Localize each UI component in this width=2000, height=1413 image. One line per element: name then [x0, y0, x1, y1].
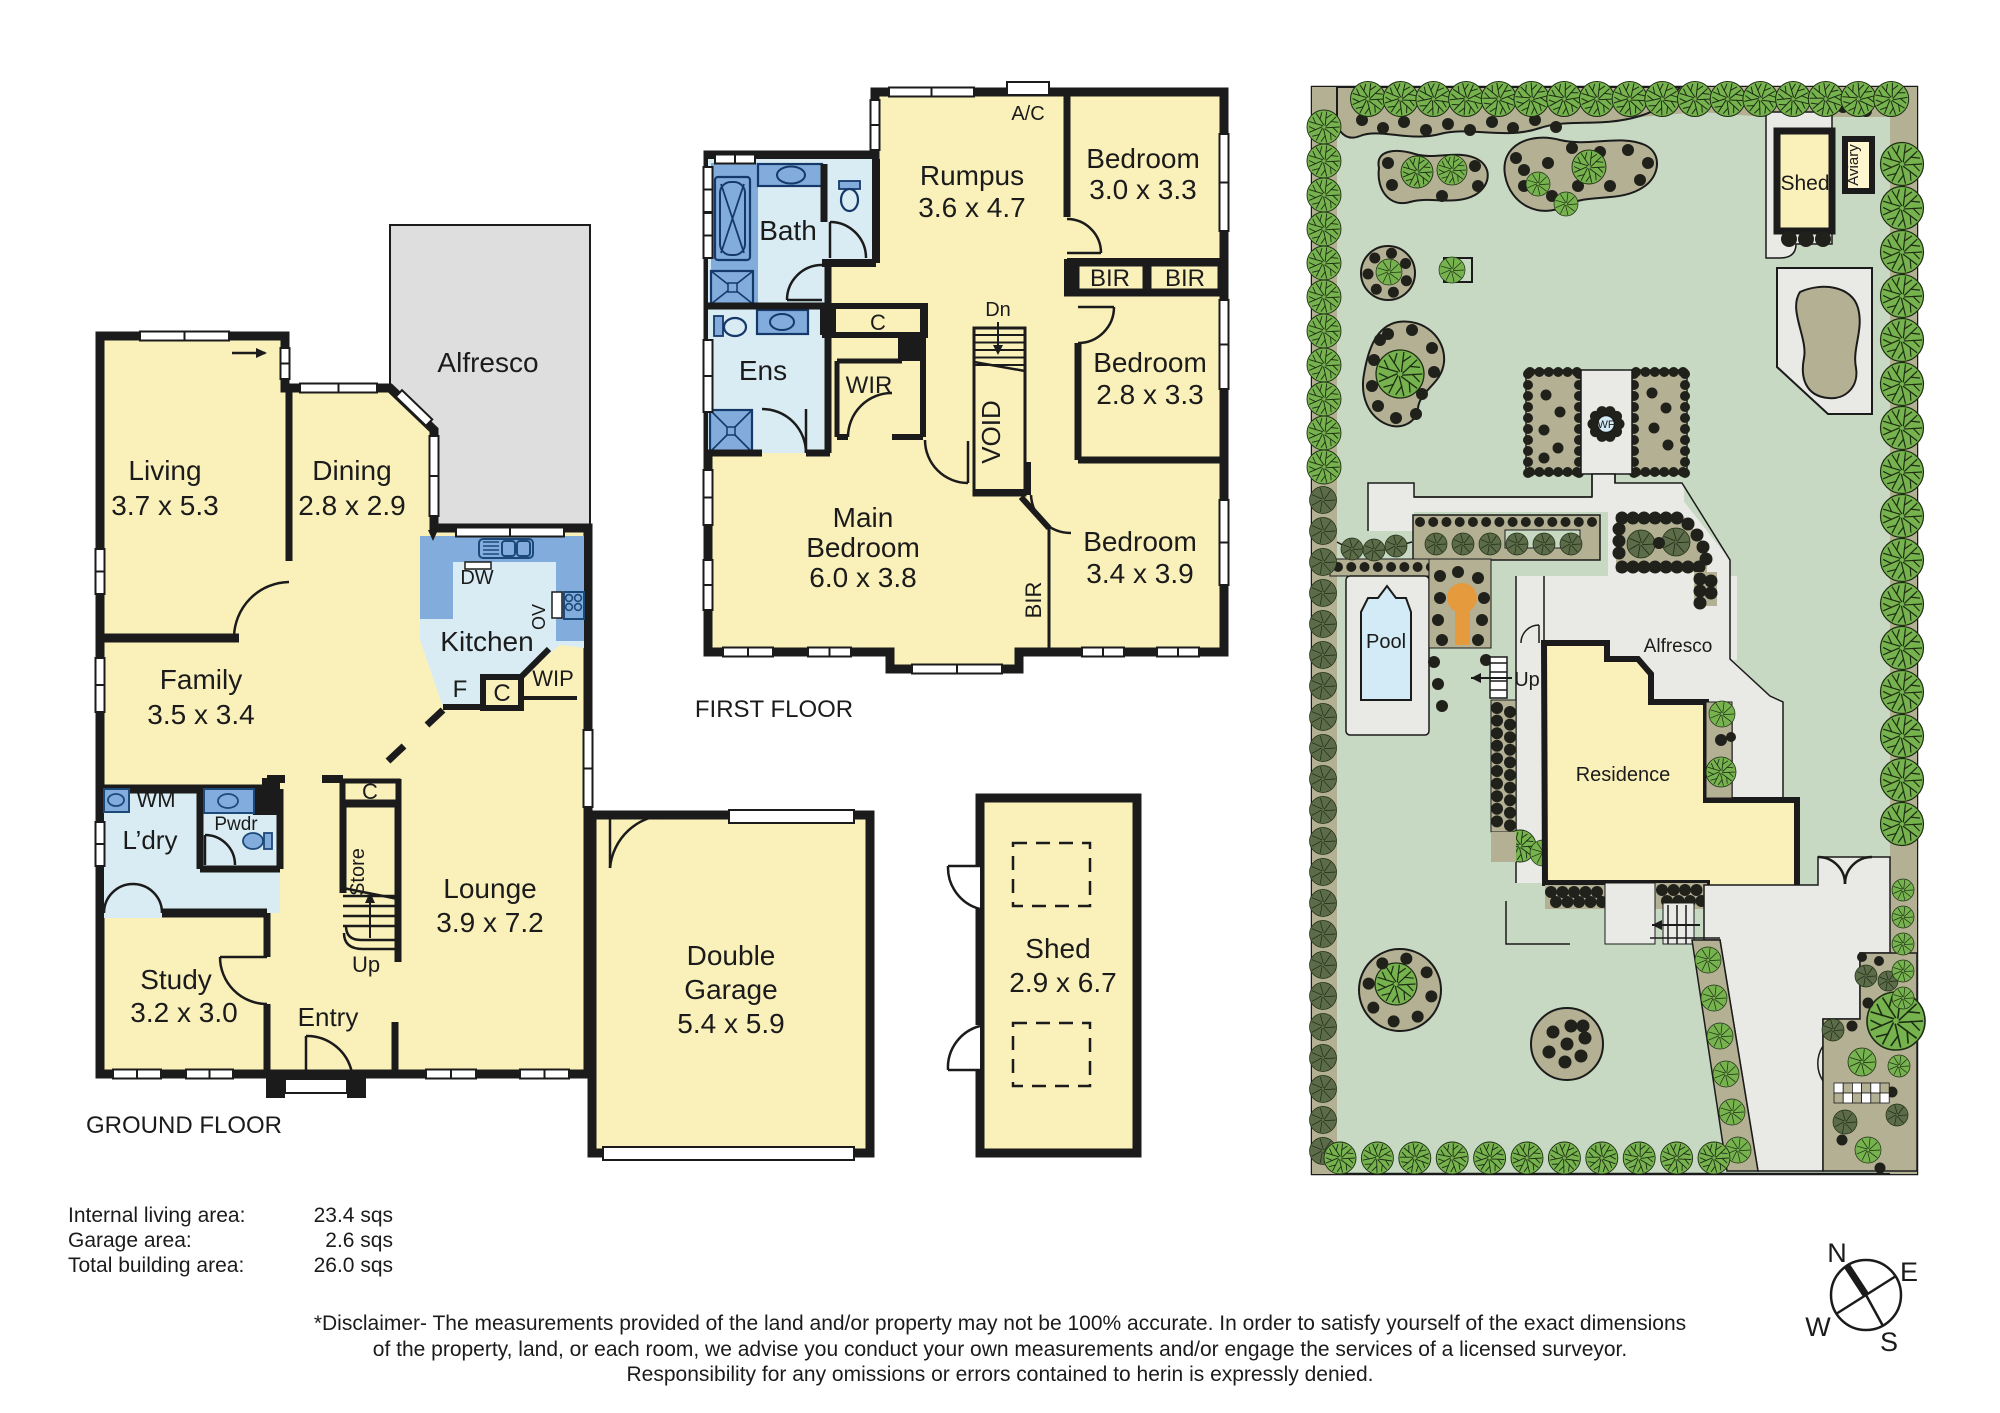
- svg-text:Shed: Shed: [1780, 172, 1829, 195]
- svg-text:Living: Living: [128, 455, 201, 486]
- svg-text:Main: Main: [833, 502, 894, 533]
- svg-text:F: F: [453, 676, 468, 703]
- svg-text:Bath: Bath: [759, 215, 817, 246]
- svg-text:of the property, land, or each: of the property, land, or each room, we …: [373, 1338, 1627, 1361]
- svg-text:FIRST FLOOR: FIRST FLOOR: [695, 696, 853, 723]
- svg-text:W: W: [1805, 1312, 1831, 1342]
- svg-text:C: C: [493, 680, 510, 707]
- svg-text:Bedroom: Bedroom: [806, 532, 920, 563]
- svg-text:Aviary: Aviary: [1845, 144, 1862, 186]
- svg-text:N: N: [1827, 1238, 1847, 1268]
- svg-text:Total building area:: Total building area:: [68, 1254, 244, 1277]
- svg-text:Bedroom: Bedroom: [1086, 143, 1200, 174]
- svg-text:Garage: Garage: [684, 974, 777, 1005]
- svg-text:Ens: Ens: [739, 355, 787, 386]
- svg-text:C: C: [870, 310, 886, 335]
- svg-text:2.8 x 2.9: 2.8 x 2.9: [298, 490, 405, 521]
- svg-text:S: S: [1880, 1327, 1898, 1357]
- svg-text:Up: Up: [1514, 669, 1540, 691]
- svg-text:3.2 x 3.0: 3.2 x 3.0: [130, 997, 237, 1028]
- svg-text:Shed: Shed: [1025, 933, 1090, 964]
- svg-text:Family: Family: [160, 664, 242, 695]
- svg-text:Double: Double: [687, 940, 776, 971]
- svg-text:3.4 x 3.9: 3.4 x 3.9: [1086, 558, 1193, 589]
- svg-text:5.4 x 5.9: 5.4 x 5.9: [677, 1008, 784, 1039]
- svg-text:3.7 x 5.3: 3.7 x 5.3: [111, 490, 218, 521]
- svg-text:*Disclaimer- The measurements: *Disclaimer- The measurements provided o…: [314, 1312, 1686, 1335]
- svg-text:2.9 x 6.7: 2.9 x 6.7: [1009, 967, 1116, 998]
- svg-text:Dining: Dining: [312, 455, 391, 486]
- svg-text:Residence: Residence: [1576, 764, 1671, 786]
- svg-text:Bedroom: Bedroom: [1093, 347, 1207, 378]
- svg-text:BIR: BIR: [1090, 265, 1130, 292]
- svg-text:A/C: A/C: [1011, 103, 1044, 125]
- svg-text:Bedroom: Bedroom: [1083, 526, 1197, 557]
- svg-text:Internal living area:: Internal living area:: [68, 1204, 245, 1227]
- svg-text:WM: WM: [136, 787, 175, 812]
- svg-text:Pool: Pool: [1366, 631, 1406, 653]
- svg-text:Alfresco: Alfresco: [437, 347, 538, 378]
- svg-text:3.0 x 3.3: 3.0 x 3.3: [1089, 174, 1196, 205]
- svg-text:Responsibility for any omissio: Responsibility for any omissions or erro…: [626, 1363, 1373, 1386]
- svg-text:Pwdr: Pwdr: [214, 814, 258, 835]
- svg-text:WIR: WIR: [846, 372, 893, 399]
- svg-text:Kitchen: Kitchen: [440, 626, 533, 657]
- svg-text:Garage area:: Garage area:: [68, 1229, 192, 1252]
- svg-text:Lounge: Lounge: [443, 873, 536, 904]
- svg-text:3.6 x 4.7: 3.6 x 4.7: [918, 192, 1025, 223]
- svg-text:BIR: BIR: [1165, 265, 1205, 292]
- svg-text:VOID: VOID: [976, 400, 1006, 464]
- svg-text:Rumpus: Rumpus: [920, 160, 1024, 191]
- svg-text:E: E: [1900, 1257, 1918, 1287]
- svg-text:Dn: Dn: [985, 299, 1011, 321]
- svg-text:3.9 x 7.2: 3.9 x 7.2: [436, 907, 543, 938]
- svg-text:GROUND FLOOR: GROUND FLOOR: [86, 1112, 282, 1139]
- svg-text:Entry: Entry: [298, 1002, 359, 1032]
- svg-text:23.4 sqs: 23.4 sqs: [314, 1204, 393, 1227]
- svg-text:WIP: WIP: [532, 666, 574, 691]
- svg-text:2.6 sqs: 2.6 sqs: [325, 1229, 393, 1252]
- svg-text:Study: Study: [140, 964, 212, 995]
- svg-text:Up: Up: [352, 952, 380, 977]
- svg-text:C: C: [362, 779, 378, 804]
- svg-text:3.5 x 3.4: 3.5 x 3.4: [147, 699, 254, 730]
- svg-text:26.0 sqs: 26.0 sqs: [314, 1254, 393, 1277]
- svg-text:L’dry: L’dry: [123, 825, 178, 855]
- svg-text:BIR: BIR: [1021, 582, 1046, 619]
- svg-text:Alfresco: Alfresco: [1644, 636, 1713, 657]
- svg-text:6.0 x 3.8: 6.0 x 3.8: [809, 562, 916, 593]
- svg-text:DW: DW: [460, 567, 493, 589]
- svg-text:WF: WF: [1597, 419, 1614, 431]
- svg-text:2.8 x 3.3: 2.8 x 3.3: [1096, 379, 1203, 410]
